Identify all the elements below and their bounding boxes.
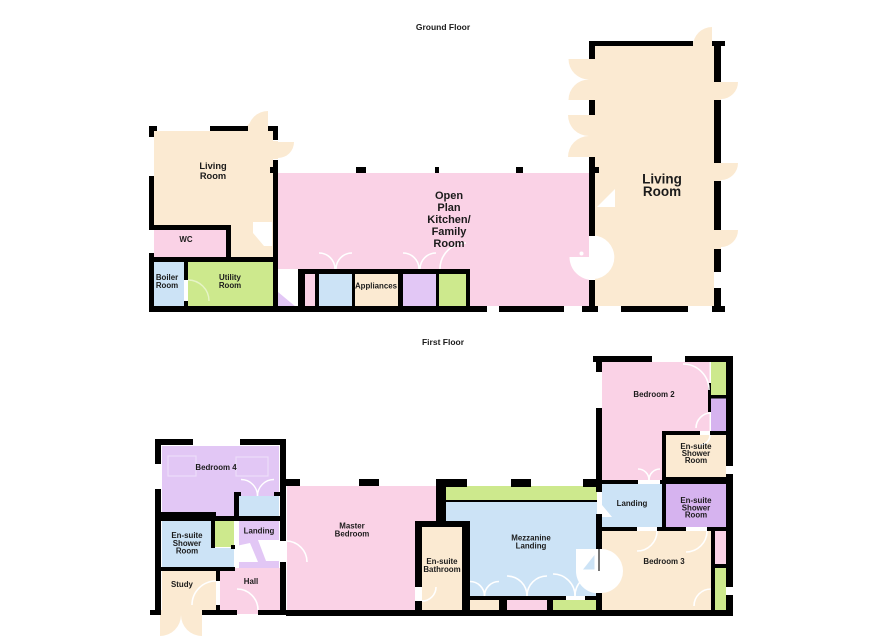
svg-text:Hall: Hall xyxy=(244,577,258,586)
svg-text:Bedroom 2: Bedroom 2 xyxy=(633,390,675,399)
svg-text:Bedroom 3: Bedroom 3 xyxy=(643,557,685,566)
svg-text:Appliances: Appliances xyxy=(355,282,398,291)
svg-text:First Floor: First Floor xyxy=(422,337,465,347)
svg-text:Plan: Plan xyxy=(437,202,461,214)
svg-text:Room: Room xyxy=(176,547,198,556)
svg-text:Open: Open xyxy=(435,190,463,202)
svg-text:Room: Room xyxy=(219,281,241,290)
svg-text:Bathroom: Bathroom xyxy=(423,565,460,574)
svg-text:Ground Floor: Ground Floor xyxy=(416,22,471,32)
svg-text:Kitchen/: Kitchen/ xyxy=(427,214,470,226)
svg-text:Room: Room xyxy=(643,184,681,199)
svg-text:Room: Room xyxy=(200,171,226,181)
svg-text:Landing: Landing xyxy=(244,527,275,536)
svg-text:Room: Room xyxy=(433,238,464,250)
svg-text:Room: Room xyxy=(685,456,707,465)
svg-text:Family: Family xyxy=(432,226,468,238)
svg-text:Bedroom 4: Bedroom 4 xyxy=(195,463,237,472)
svg-text:Study: Study xyxy=(171,580,194,589)
svg-text:Living: Living xyxy=(199,161,227,171)
svg-text:Landing: Landing xyxy=(516,542,547,551)
svg-text:Bedroom: Bedroom xyxy=(335,530,370,539)
svg-text:Room: Room xyxy=(156,281,178,290)
svg-text:Landing: Landing xyxy=(617,499,648,508)
svg-text:WC: WC xyxy=(179,235,192,244)
svg-text:Room: Room xyxy=(685,511,707,520)
